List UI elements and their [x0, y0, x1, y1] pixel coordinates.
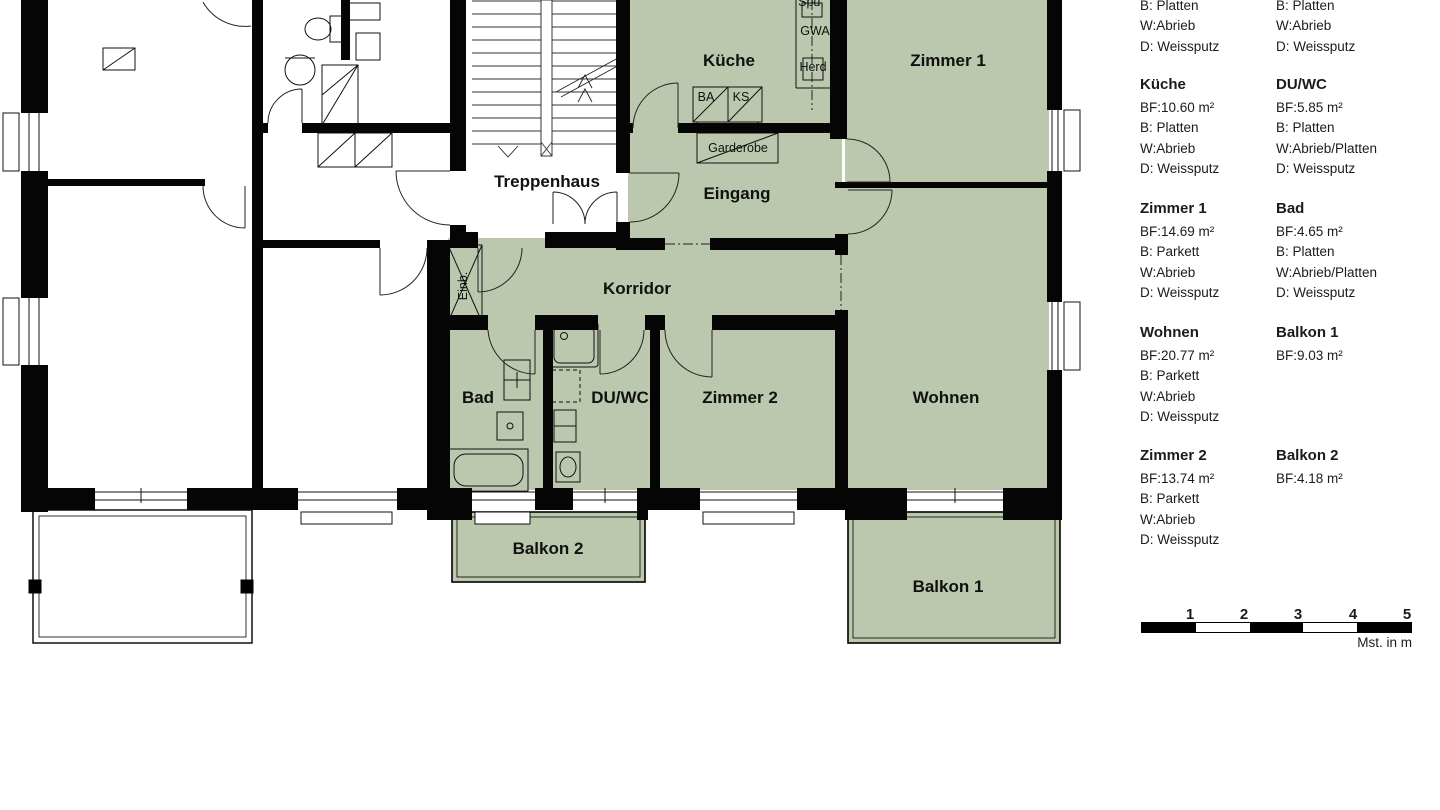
room-label-kueche: Küche [703, 51, 755, 71]
room-label-balkon2: Balkon 2 [513, 539, 584, 559]
legend-entry-title: Zimmer 2 [1140, 447, 1280, 469]
scale-bar [1141, 622, 1412, 633]
legend-line: B: Parkett [1140, 242, 1280, 262]
legend-line: B: Platten [1140, 118, 1280, 138]
legend-line: W:Abrieb [1140, 263, 1280, 283]
legend-line: BF:4.18 m² [1276, 469, 1416, 489]
annotation-garderobe: Garderobe [708, 141, 768, 155]
legend-line: D: Weissputz [1140, 530, 1280, 550]
legend-line: W:Abrieb [1276, 16, 1416, 36]
legend-line: W:Abrieb [1140, 139, 1280, 159]
room-label-bad: Bad [462, 388, 494, 408]
floorplan-page: Küche Zimmer 1 Eingang Treppenhaus Korri… [0, 0, 1440, 810]
legend-entry: B: Platten W:Abrieb D: Weissputz [1140, 0, 1280, 57]
legend-line: BF:14.69 m² [1140, 222, 1280, 242]
legend-line: W:Abrieb [1140, 387, 1280, 407]
floor-plan-canvas [0, 0, 1130, 660]
annotation-ks: KS [733, 90, 750, 104]
legend-line: B: Platten [1276, 0, 1416, 16]
legend-line: B: Parkett [1140, 489, 1280, 509]
room-label-duwc: DU/WC [591, 388, 649, 408]
legend-line: BF:10.60 m² [1140, 98, 1280, 118]
legend-entry: B: Platten W:Abrieb D: Weissputz [1276, 0, 1416, 57]
legend-line: B: Platten [1276, 242, 1416, 262]
legend-entry: Wohnen BF:20.77 m² B: Parkett W:Abrieb D… [1140, 324, 1280, 427]
legend-entry-title: DU/WC [1276, 76, 1416, 98]
legend-line: D: Weissputz [1140, 283, 1280, 303]
annotation-einbau: Einb. [456, 272, 470, 301]
legend-entry: Küche BF:10.60 m² B: Platten W:Abrieb D:… [1140, 76, 1280, 179]
legend-entry-title: Wohnen [1140, 324, 1280, 346]
annotation-ba: BA [698, 90, 715, 104]
scale-tick: 5 [1387, 606, 1427, 623]
legend-entry-title: Küche [1140, 76, 1280, 98]
legend-line: W:Abrieb [1140, 510, 1280, 530]
legend-entry-title: Balkon 1 [1276, 324, 1416, 346]
legend-line: W:Abrieb/Platten [1276, 263, 1416, 283]
legend-entry: Zimmer 2 BF:13.74 m² B: Parkett W:Abrieb… [1140, 447, 1280, 550]
legend-entry-title: Zimmer 1 [1140, 200, 1280, 222]
legend-entry: Bad BF:4.65 m² B: Platten W:Abrieb/Platt… [1276, 200, 1416, 303]
room-label-treppenhaus: Treppenhaus [494, 172, 600, 192]
room-label-wohnen: Wohnen [913, 388, 980, 408]
annotation-spuele: Spü. [798, 0, 824, 9]
legend-entry-title: Bad [1276, 200, 1416, 222]
legend-line: B: Platten [1276, 118, 1416, 138]
scale-unit-label: Mst. in m [1282, 635, 1412, 650]
legend-line: D: Weissputz [1276, 37, 1416, 57]
legend-line: D: Weissputz [1276, 283, 1416, 303]
legend-entry: Balkon 2 BF:4.18 m² [1276, 447, 1416, 489]
legend-line: B: Parkett [1140, 366, 1280, 386]
legend-line: W:Abrieb [1140, 16, 1280, 36]
room-label-zimmer1: Zimmer 1 [910, 51, 986, 71]
legend-line: BF:20.77 m² [1140, 346, 1280, 366]
legend-line: D: Weissputz [1140, 37, 1280, 57]
legend-line: D: Weissputz [1140, 407, 1280, 427]
legend-line: BF:13.74 m² [1140, 469, 1280, 489]
legend-line: D: Weissputz [1276, 159, 1416, 179]
scale-tick: 3 [1278, 606, 1318, 623]
scale-tick: 1 [1170, 606, 1210, 623]
room-label-eingang: Eingang [703, 184, 770, 204]
scale-tick: 4 [1333, 606, 1373, 623]
room-label-korridor: Korridor [603, 279, 671, 299]
legend-entry-title: Balkon 2 [1276, 447, 1416, 469]
legend-line: W:Abrieb/Platten [1276, 139, 1416, 159]
vestibule-double-door [553, 192, 617, 224]
room-label-balkon1: Balkon 1 [913, 577, 984, 597]
legend-line: BF:5.85 m² [1276, 98, 1416, 118]
annotation-gwa: GWA [800, 24, 829, 38]
legend-line: B: Platten [1140, 0, 1280, 16]
room-label-zimmer2: Zimmer 2 [702, 388, 778, 408]
stairs [472, 0, 623, 157]
legend-line: BF:9.03 m² [1276, 346, 1416, 366]
legend-line: D: Weissputz [1140, 159, 1280, 179]
legend-entry: Zimmer 1 BF:14.69 m² B: Parkett W:Abrieb… [1140, 200, 1280, 303]
legend-line: BF:4.65 m² [1276, 222, 1416, 242]
legend-entry: Balkon 1 BF:9.03 m² [1276, 324, 1416, 366]
legend-entry: DU/WC BF:5.85 m² B: Platten W:Abrieb/Pla… [1276, 76, 1416, 179]
annotation-herd: Herd [799, 60, 826, 74]
scale-tick: 2 [1224, 606, 1264, 623]
neighbour-balcony-outline [29, 510, 253, 643]
